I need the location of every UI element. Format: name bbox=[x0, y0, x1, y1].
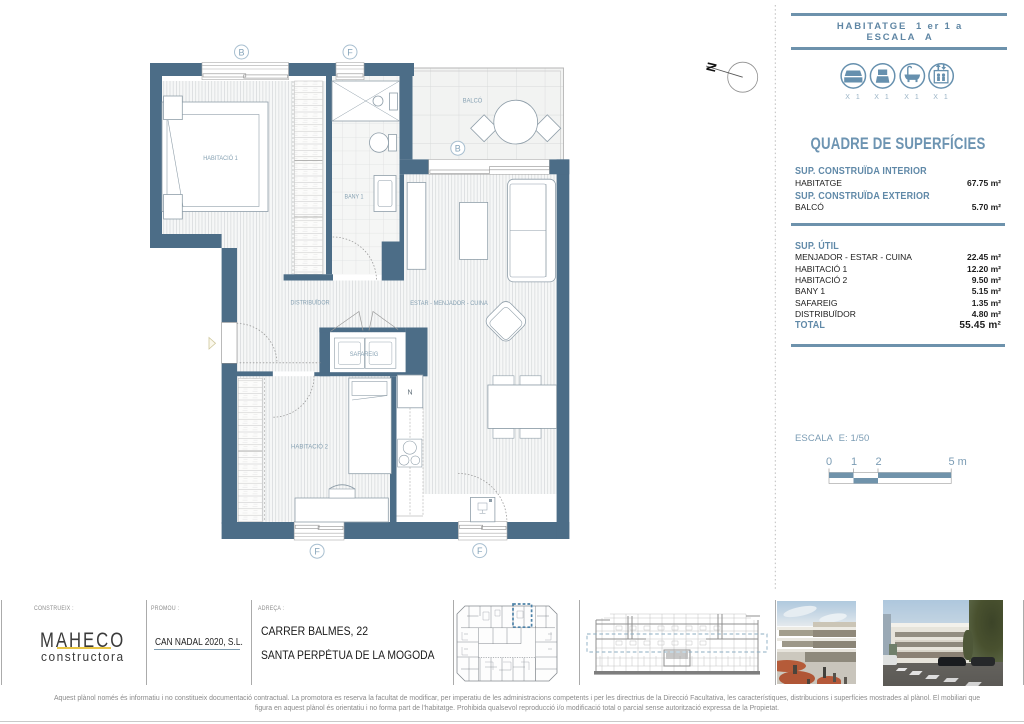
svg-text:DISTRIBUÏDOR: DISTRIBUÏDOR bbox=[291, 299, 330, 307]
svg-text:N: N bbox=[407, 390, 412, 397]
svg-text:ESTAR - MENJADOR - CUINA: ESTAR - MENJADOR - CUINA bbox=[410, 300, 488, 307]
svg-text:BALCÓ: BALCÓ bbox=[463, 96, 483, 105]
svg-text:F: F bbox=[477, 546, 483, 556]
svg-text:1: 1 bbox=[851, 456, 857, 468]
svg-text:HABITACIÓ 2: HABITACIÓ 2 bbox=[291, 442, 328, 451]
svg-text:N: N bbox=[703, 61, 720, 74]
svg-text:SAFAREIG: SAFAREIG bbox=[350, 351, 379, 358]
svg-text:HABITACIÓ 1: HABITACIÓ 1 bbox=[203, 153, 238, 162]
svg-text:BANY 1: BANY 1 bbox=[345, 194, 364, 201]
svg-text:F: F bbox=[347, 48, 353, 58]
svg-text:B: B bbox=[455, 144, 461, 154]
svg-text:2: 2 bbox=[876, 456, 882, 468]
svg-text:5 m: 5 m bbox=[949, 456, 967, 468]
svg-text:B: B bbox=[238, 48, 244, 58]
svg-text:F: F bbox=[314, 547, 320, 557]
svg-text:0: 0 bbox=[826, 456, 832, 468]
